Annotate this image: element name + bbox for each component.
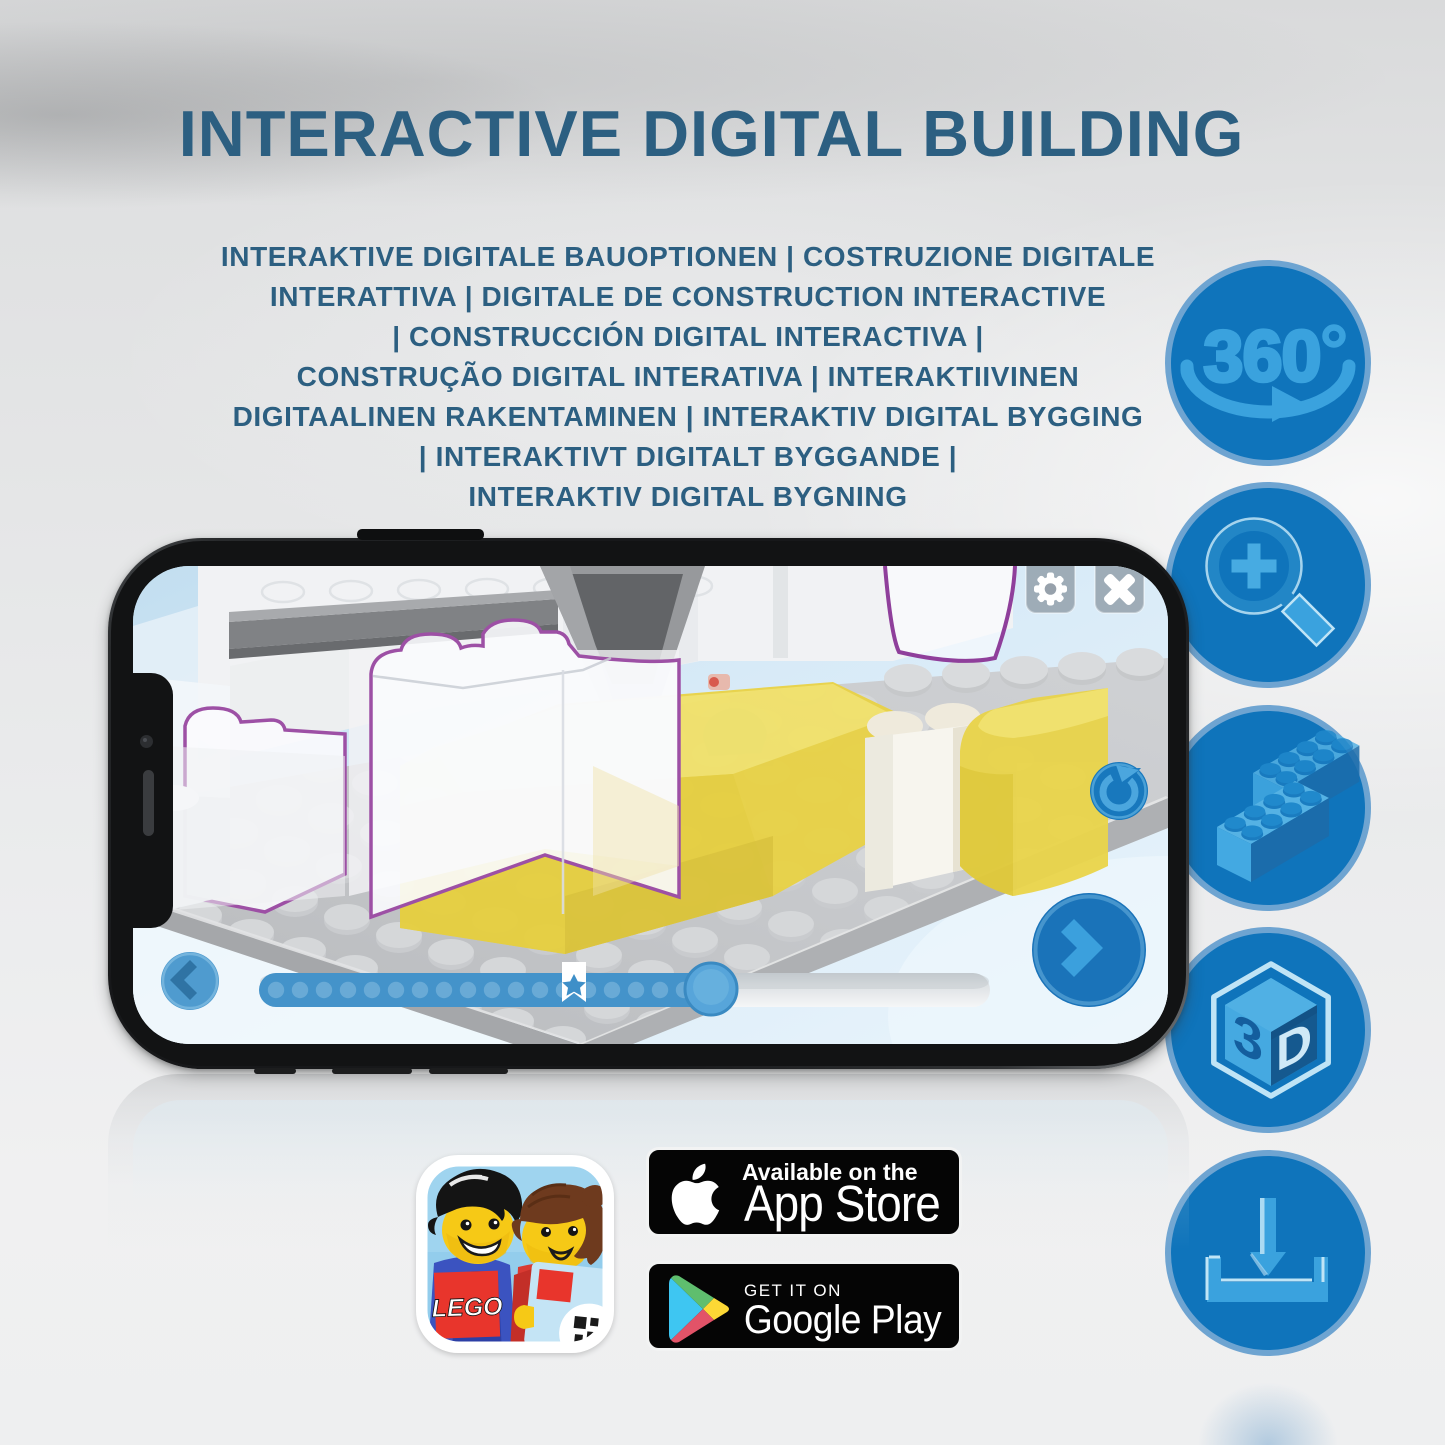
svg-text:LEGO: LEGO [431,1292,503,1322]
svg-text:App Store: App Store [744,1176,940,1233]
svg-text:Google Play: Google Play [744,1298,943,1343]
svg-text:360: 360 [1203,317,1320,397]
